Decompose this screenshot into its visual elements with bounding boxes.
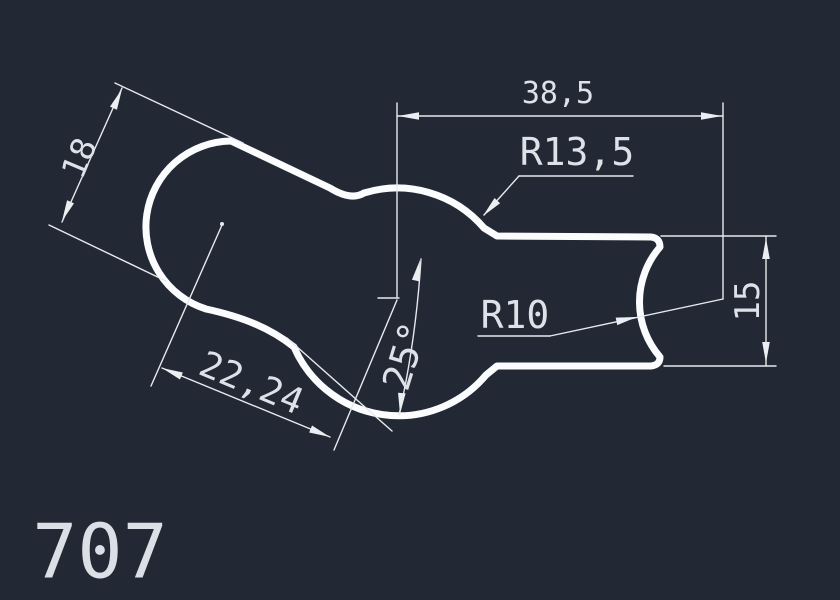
- arrowhead: [110, 87, 125, 109]
- cad-canvas[interactable]: 38,5 R13,5 18 22,24 25° R10 15 707: [0, 0, 840, 600]
- arrowhead: [762, 238, 770, 259]
- dimension-text-r13-5[interactable]: R13,5: [520, 133, 634, 171]
- extension-line: [115, 83, 243, 143]
- arrowhead: [161, 364, 183, 379]
- arrowhead: [398, 112, 419, 120]
- arrowhead: [412, 259, 424, 281]
- arrowhead: [396, 393, 405, 415]
- arrowhead: [762, 342, 770, 363]
- arrowhead: [59, 200, 74, 222]
- arrowhead: [616, 313, 638, 325]
- dimension-22-24[interactable]: [151, 225, 397, 450]
- dimension-text-r10[interactable]: R10: [481, 296, 550, 334]
- arrowhead: [309, 425, 331, 440]
- dimension-text-38-5[interactable]: 38,5: [522, 79, 594, 109]
- center-marks[interactable]: [220, 222, 399, 298]
- leader-r13-5[interactable]: [480, 176, 633, 219]
- arrowhead: [480, 198, 500, 219]
- dimension-text-15[interactable]: 15: [731, 281, 765, 322]
- arrowhead: [701, 112, 722, 120]
- part-number-text[interactable]: 707: [32, 515, 167, 590]
